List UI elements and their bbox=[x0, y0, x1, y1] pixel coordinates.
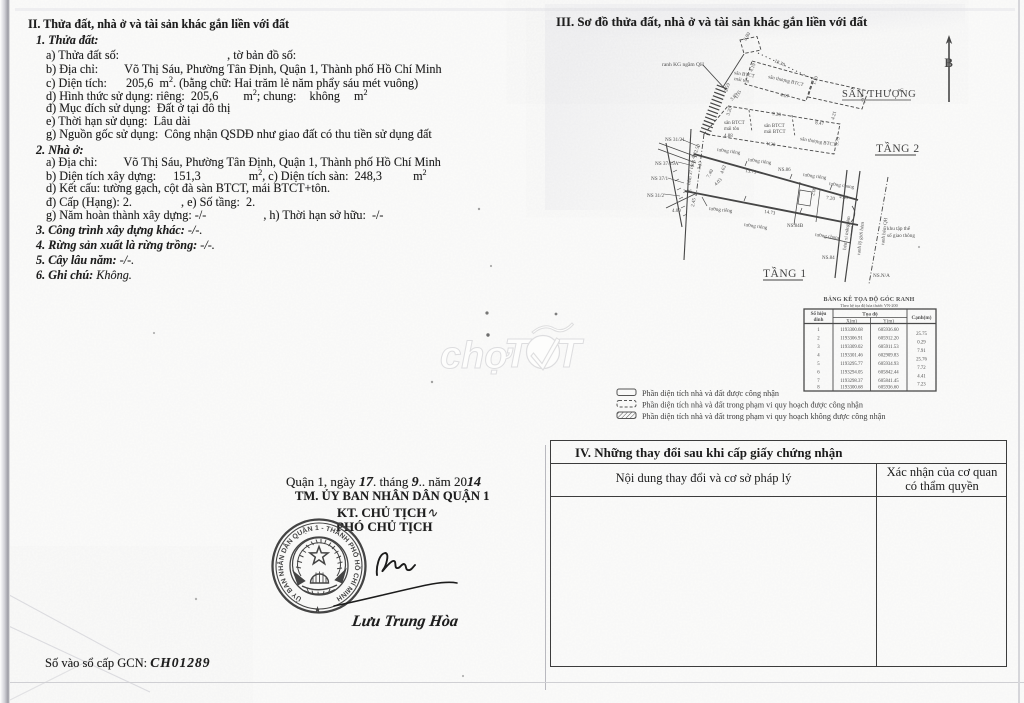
svg-text:605936.60: 605936.60 bbox=[878, 328, 899, 333]
svg-text:4.60: 4.60 bbox=[839, 195, 849, 201]
svg-text:605911.53: 605911.53 bbox=[878, 345, 899, 350]
svg-text:TẦNG 1: TẦNG 1 bbox=[763, 265, 807, 280]
svg-text:TẦNG 2: TẦNG 2 bbox=[876, 140, 920, 155]
svg-text:4: 4 bbox=[817, 354, 820, 359]
svg-text:7.40: 7.40 bbox=[706, 168, 715, 179]
svg-text:tường chung: tường chung bbox=[815, 233, 841, 242]
svg-text:0.80: 0.80 bbox=[743, 31, 752, 42]
svg-text:tường riêng: tường riêng bbox=[717, 148, 741, 156]
svg-text:7.72: 7.72 bbox=[917, 366, 926, 371]
svg-text:25.76: 25.76 bbox=[916, 358, 927, 363]
svg-text:NS 37/1: NS 37/1 bbox=[651, 176, 669, 182]
svg-text:13.73: 13.73 bbox=[745, 169, 757, 176]
svg-text:Cạnh(m): Cạnh(m) bbox=[912, 314, 932, 321]
svg-text:NS 31/21: NS 31/21 bbox=[665, 137, 685, 143]
svg-text:sân thượng BTCT: sân thượng BTCT bbox=[800, 137, 837, 148]
svg-text:mái BTCT: mái BTCT bbox=[764, 130, 786, 135]
svg-text:2.00: 2.00 bbox=[811, 186, 818, 196]
svg-text:4.41: 4.41 bbox=[917, 375, 926, 380]
svg-text:sân BTCT: sân BTCT bbox=[724, 121, 745, 126]
svg-text:tường riêng: tường riêng bbox=[744, 223, 768, 231]
svg-text:605934.93: 605934.93 bbox=[878, 362, 899, 367]
svg-text:5: 5 bbox=[817, 362, 820, 367]
svg-text:NS.84Đ: NS.84Đ bbox=[787, 224, 804, 229]
svg-text:đỉnh: đỉnh bbox=[814, 318, 824, 323]
svg-text:Theo hệ tọa độ hóa thước VN-20: Theo hệ tọa độ hóa thước VN-200 bbox=[840, 303, 897, 308]
svg-text:Phần diện tích nhà và đất được: Phần diện tích nhà và đất được công nhận bbox=[642, 389, 779, 398]
svg-text:Tọa độ: Tọa độ bbox=[862, 312, 878, 318]
svg-text:khu tập thể: khu tập thể bbox=[887, 225, 911, 232]
svg-text:hẻm xi măng 4m: hẻm xi măng 4m bbox=[843, 216, 852, 250]
svg-text:X(m): X(m) bbox=[846, 320, 857, 325]
svg-text:2.86: 2.86 bbox=[683, 190, 692, 195]
svg-text:25.75: 25.75 bbox=[916, 332, 927, 337]
svg-text:tường riêng: tường riêng bbox=[803, 173, 827, 181]
svg-text:6: 6 bbox=[817, 371, 820, 376]
svg-text:1193300.68: 1193300.68 bbox=[840, 328, 863, 333]
svg-text:NS 37/19A: NS 37/19A bbox=[655, 161, 679, 167]
svg-text:602909.83: 602909.83 bbox=[878, 354, 899, 359]
svg-text:2: 2 bbox=[817, 337, 820, 342]
svg-text:605842.44: 605842.44 bbox=[878, 371, 899, 376]
svg-text:1193309.02: 1193309.02 bbox=[840, 345, 863, 350]
svg-text:mái tôn: mái tôn bbox=[724, 127, 740, 132]
svg-text:3.73: 3.73 bbox=[835, 136, 842, 146]
svg-text:3.17: 3.17 bbox=[697, 160, 704, 170]
svg-text:2.45: 2.45 bbox=[691, 197, 698, 207]
svg-text:NS 31/2: NS 31/2 bbox=[647, 193, 665, 199]
svg-text:NS.84: NS.84 bbox=[822, 256, 835, 261]
svg-text:4.88: 4.88 bbox=[724, 134, 733, 139]
svg-text:sân thượng BTCT: sân thượng BTCT bbox=[768, 75, 804, 88]
svg-text:Phần diện tích nhà và đất tron: Phần diện tích nhà và đất trong phạm vi … bbox=[642, 412, 885, 421]
svg-text:1193306.91: 1193306.91 bbox=[840, 337, 863, 342]
svg-text:7.91: 7.91 bbox=[917, 349, 926, 354]
svg-text:4.21: 4.21 bbox=[831, 110, 838, 120]
svg-text:3.20: 3.20 bbox=[726, 106, 734, 116]
svg-text:1193294.05: 1193294.05 bbox=[840, 371, 863, 376]
svg-text:SÂN THƯỢNG: SÂN THƯỢNG bbox=[842, 88, 916, 100]
svg-text:4.62: 4.62 bbox=[720, 164, 728, 174]
svg-text:tường riêng: tường riêng bbox=[748, 158, 772, 166]
svg-text:sân BTCT: sân BTCT bbox=[764, 124, 785, 129]
svg-text:số giao thông: số giao thông bbox=[887, 232, 915, 239]
svg-text:3: 3 bbox=[817, 345, 820, 350]
svg-text:NS.N/A: NS.N/A bbox=[873, 273, 890, 279]
svg-text:4.00: 4.00 bbox=[672, 209, 681, 214]
svg-text:605912.20: 605912.20 bbox=[878, 337, 899, 342]
svg-text:Y(m): Y(m) bbox=[883, 320, 894, 325]
svg-text:BẢNG KÊ TỌA ĐỘ GÓC RANH: BẢNG KÊ TỌA ĐỘ GÓC RANH bbox=[824, 295, 915, 303]
svg-text:9.20: 9.20 bbox=[772, 112, 782, 118]
svg-text:14.73: 14.73 bbox=[764, 210, 776, 217]
svg-text:1193295.77: 1193295.77 bbox=[840, 362, 863, 367]
svg-text:1: 1 bbox=[817, 328, 820, 333]
svg-text:Phần diện tích nhà và đất tron: Phần diện tích nhà và đất trong phạm vi … bbox=[642, 401, 863, 410]
svg-text:ranh lộ giới hẻm: ranh lộ giới hẻm bbox=[857, 222, 866, 256]
svg-text:G: G bbox=[900, 88, 904, 94]
svg-text:ranh KG ngầm QH: ranh KG ngầm QH bbox=[662, 61, 704, 68]
svg-text:4.67: 4.67 bbox=[858, 94, 865, 104]
svg-text:tường riêng: tường riêng bbox=[709, 207, 733, 214]
svg-text:Số hiệu: Số hiệu bbox=[811, 312, 827, 317]
svg-text:tường chung: tường chung bbox=[829, 182, 855, 191]
svg-text:0.29: 0.29 bbox=[917, 341, 926, 346]
svg-text:8.47: 8.47 bbox=[815, 121, 825, 127]
svg-text:NS.86: NS.86 bbox=[778, 168, 791, 173]
svg-text:4.19: 4.19 bbox=[749, 62, 757, 72]
svg-text:V.20: V.20 bbox=[766, 142, 776, 148]
svg-text:4.07: 4.07 bbox=[780, 93, 790, 100]
svg-text:4.03: 4.03 bbox=[714, 177, 724, 187]
svg-text:1.10: 1.10 bbox=[812, 75, 820, 85]
svg-text:1193301.46: 1193301.46 bbox=[840, 354, 863, 359]
svg-text:7.20: 7.20 bbox=[826, 196, 836, 202]
svg-text:B: B bbox=[945, 56, 953, 70]
